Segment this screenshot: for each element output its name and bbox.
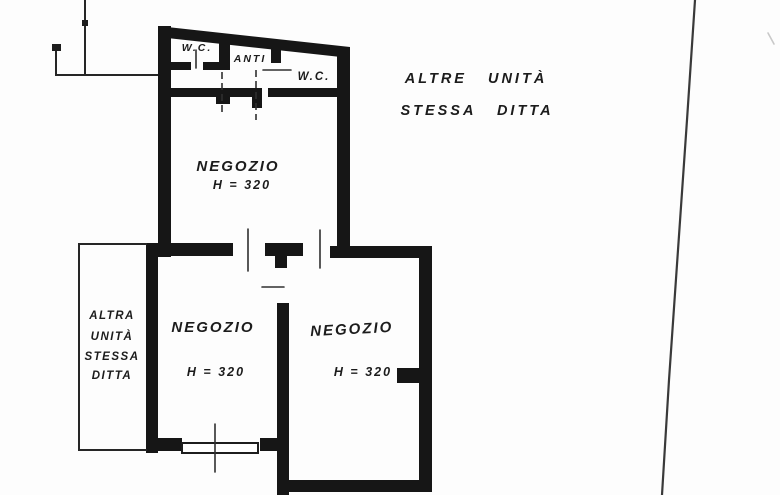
- wall-middle-b: [265, 243, 303, 256]
- annotation-adjacent-left-line1: ALTRA: [88, 310, 135, 322]
- shop-entrance-threshold: [182, 443, 258, 453]
- wall-wc-left-bottom-b: [203, 62, 230, 70]
- room-height-negozio-bottom-left: H = 320: [187, 365, 245, 379]
- adjacent-unit-outline: [79, 244, 146, 450]
- annotation-adjacent-left-line3: STESSA: [84, 351, 139, 363]
- wall-pier-right: [397, 368, 419, 383]
- wall-bottom-left-a: [158, 438, 182, 451]
- wall-middle-right: [330, 246, 432, 258]
- wall-bottom-left-b: [260, 438, 277, 451]
- room-label-wc-right: W.C.: [298, 71, 331, 83]
- wall-partition-lower: [277, 303, 289, 495]
- annotation-other-units-line2: STESSA DITTA: [400, 103, 553, 119]
- boundary-lines-top-left: [52, 0, 160, 75]
- wall-wc-left-bottom-a: [171, 62, 191, 70]
- room-label-anti: ANTI: [233, 53, 267, 65]
- wall-strip-bottom-c: [268, 88, 337, 97]
- room-label-wc-left: W.C.: [182, 42, 213, 54]
- room-label-negozio-bottom-right: NEGOZIO: [310, 319, 394, 340]
- faint-mark: [768, 33, 774, 44]
- walls-middle-division: [146, 229, 432, 271]
- wall-middle-a: [146, 243, 233, 256]
- wall-right-upper: [337, 47, 350, 257]
- boundary-corner-blob: [52, 44, 61, 51]
- annotation-other-units-line1: ALTRE UNITÀ: [404, 70, 548, 87]
- floor-plan-page: W.C. ANTI W.C. NEGOZIO H = 320 NEGOZIO H…: [0, 0, 780, 495]
- wall-right-lower: [419, 246, 432, 492]
- parcel-boundary-diagonal-line: [662, 0, 695, 495]
- wall-left-upper: [158, 26, 171, 257]
- wall-strip-bottom-a: [171, 88, 216, 97]
- wall-strip-jamb-a: [216, 88, 230, 104]
- annotation-adjacent-left-line4: DITTA: [92, 370, 133, 382]
- room-height-negozio-top: H = 320: [213, 178, 271, 192]
- floor-plan-canvas: W.C. ANTI W.C. NEGOZIO H = 320 NEGOZIO H…: [0, 0, 780, 495]
- room-height-negozio-bottom-right: H = 320: [334, 365, 392, 379]
- annotation-adjacent-left-line2: UNITÀ: [91, 330, 134, 343]
- wall-bottom-right: [277, 480, 432, 492]
- room-label-negozio-bottom-left: NEGOZIO: [171, 319, 254, 336]
- boundary-tick: [82, 20, 88, 26]
- wall-left-lower: [146, 243, 158, 453]
- wall-strip-jamb-b: [252, 88, 262, 108]
- wall-anti-wc-divider: [271, 46, 281, 63]
- boundary-line-l-shape: [56, 47, 160, 75]
- room-label-negozio-top: NEGOZIO: [196, 158, 279, 175]
- wall-middle-stub: [275, 256, 287, 268]
- wall-strip-bottom-b: [230, 88, 252, 97]
